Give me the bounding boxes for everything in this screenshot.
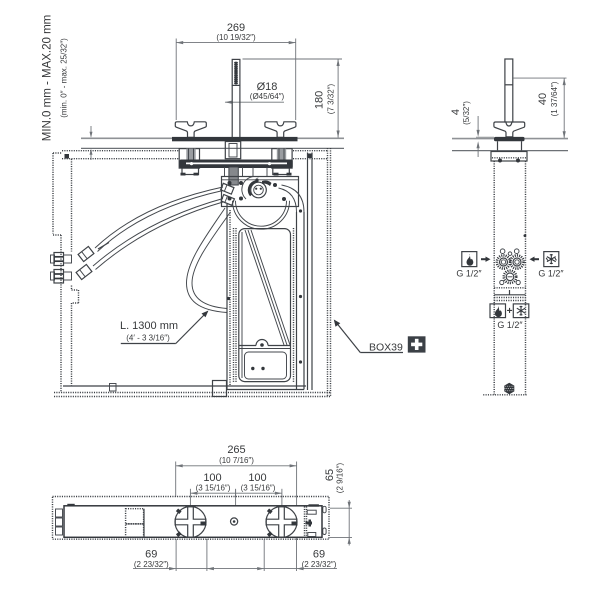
svg-text:265: 265 [227, 444, 245, 456]
svg-text:(3 15/16″): (3 15/16″) [196, 483, 231, 492]
svg-text:(2 9/16″): (2 9/16″) [336, 462, 345, 493]
svg-text:(min. 0″ - max. 25/32″): (min. 0″ - max. 25/32″) [60, 38, 69, 118]
svg-text:(4′ - 3 3/16″): (4′ - 3 3/16″) [126, 334, 170, 343]
svg-text:40: 40 [537, 93, 549, 105]
svg-text:100: 100 [203, 472, 221, 484]
svg-text:69: 69 [145, 549, 157, 561]
svg-text:BOX39: BOX39 [369, 342, 403, 354]
svg-text:G 1/2″: G 1/2″ [497, 320, 523, 330]
svg-text:4: 4 [450, 109, 462, 115]
svg-text:G 1/2″: G 1/2″ [456, 269, 482, 279]
svg-text:(7 3/32″): (7 3/32″) [327, 83, 336, 114]
svg-text:MIN.0 mm - MAX.20 mm: MIN.0 mm - MAX.20 mm [42, 15, 54, 142]
svg-text:(10 7/16″): (10 7/16″) [219, 456, 254, 465]
svg-text:(5/32″): (5/32″) [462, 101, 471, 125]
svg-text:L. 1300 mm: L. 1300 mm [120, 320, 178, 332]
svg-text:(Ø45/64″): (Ø45/64″) [250, 92, 285, 101]
svg-text:(2 23/32″): (2 23/32″) [302, 560, 337, 569]
svg-text:100: 100 [248, 472, 266, 484]
svg-text:65: 65 [324, 469, 336, 481]
svg-text:(3 15/16″): (3 15/16″) [241, 483, 276, 492]
svg-text:(10 19/32″): (10 19/32″) [216, 33, 256, 42]
svg-text:(1 37/64″): (1 37/64″) [550, 81, 559, 116]
svg-text:180: 180 [314, 91, 326, 109]
svg-text:(2 23/32″): (2 23/32″) [134, 560, 169, 569]
svg-text:+: + [507, 306, 513, 317]
svg-text:G 1/2″: G 1/2″ [538, 269, 564, 279]
svg-text:69: 69 [313, 549, 325, 561]
